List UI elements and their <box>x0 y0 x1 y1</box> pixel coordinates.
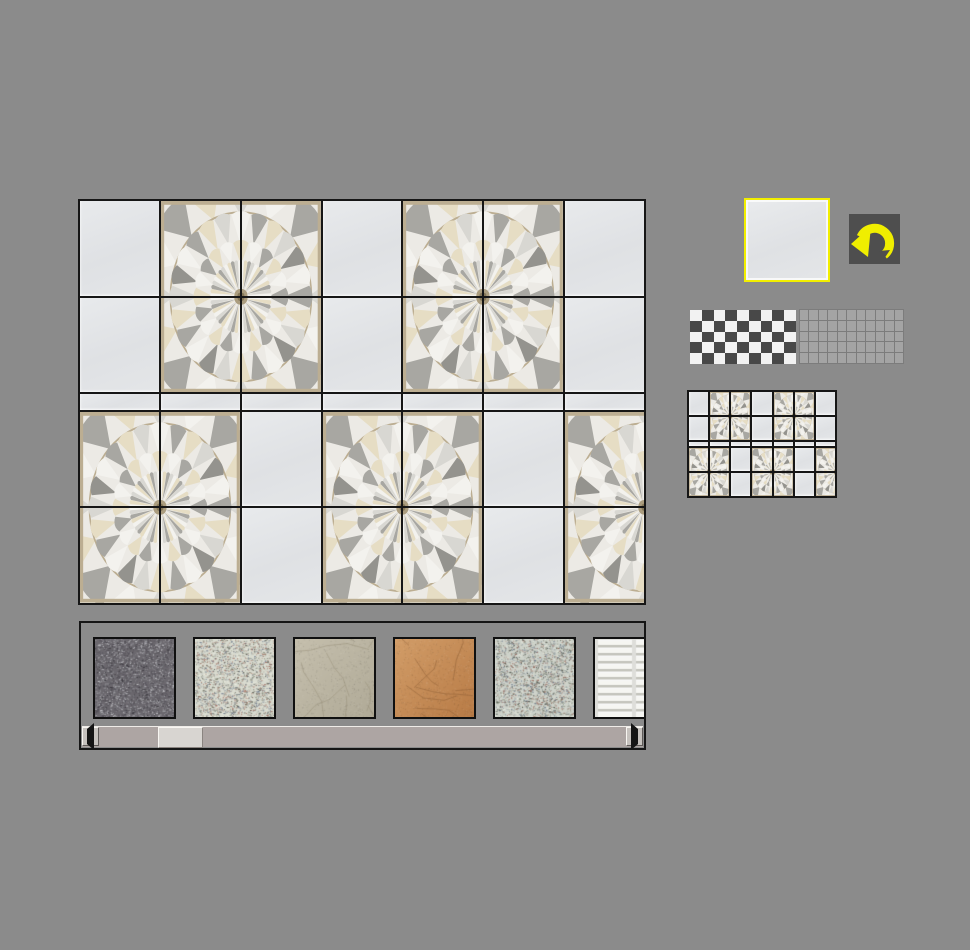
grid-cell <box>847 332 855 342</box>
grid-cell <box>857 353 865 363</box>
grid-cell <box>895 321 903 331</box>
grid-cell <box>885 353 893 363</box>
patterned-tile-tl[interactable] <box>403 201 482 296</box>
checker-cell <box>784 310 796 321</box>
patterned-tile-tl[interactable] <box>323 412 402 507</box>
grid-cell <box>838 310 846 320</box>
rotate-counterclockwise-arrow-icon <box>849 214 900 264</box>
texture-swatch-dark-granite-speckle[interactable] <box>93 637 176 719</box>
grid-cell <box>895 310 903 320</box>
checker-cell <box>784 342 796 353</box>
arrow-right-icon <box>631 723 638 750</box>
plain-tile[interactable] <box>484 394 563 410</box>
plain-tile[interactable] <box>323 394 402 410</box>
plain-tile[interactable] <box>80 298 159 393</box>
grid-cell <box>819 342 827 352</box>
patterned-tile-br[interactable] <box>161 508 240 603</box>
patterned-tile-tr <box>731 392 750 415</box>
texture-palette-panel <box>79 621 646 750</box>
grid-cell <box>876 310 884 320</box>
patterned-tile-bl[interactable] <box>403 298 482 393</box>
checker-cell <box>702 332 714 343</box>
grid-cell <box>838 353 846 363</box>
grid-cell <box>819 321 827 331</box>
grid-cell <box>819 332 827 342</box>
checker-cell <box>784 321 796 332</box>
checker-cell <box>749 353 761 364</box>
palette-scrollbar[interactable] <box>82 726 643 747</box>
plain-tile <box>752 442 771 446</box>
plain-tile <box>689 417 708 440</box>
grid-cell <box>857 310 865 320</box>
grid-cell <box>866 310 874 320</box>
grid-cell <box>800 332 808 342</box>
patterned-tile-br[interactable] <box>242 298 321 393</box>
patterned-tile-bl <box>816 473 835 496</box>
texture-swatch-white-relief-bricks[interactable] <box>593 637 646 719</box>
patterned-tile-tr <box>774 448 793 471</box>
grid-cell <box>809 310 817 320</box>
plain-tile <box>731 442 750 446</box>
patterned-tile-bl[interactable] <box>80 508 159 603</box>
patterned-tile-br[interactable] <box>403 508 482 603</box>
grid-cell <box>800 321 808 331</box>
patterned-tile-tl[interactable] <box>565 412 644 507</box>
patterned-tile-tr[interactable] <box>242 201 321 296</box>
plain-tile <box>731 473 750 496</box>
patterned-tile-br <box>731 417 750 440</box>
texture-swatch-terracotta-crackle[interactable] <box>393 637 476 719</box>
checker-cell <box>749 310 761 321</box>
grid-cell <box>857 321 865 331</box>
grid-cell <box>800 342 808 352</box>
grid-cell <box>866 332 874 342</box>
checker-cell <box>714 321 726 332</box>
grid-cell <box>847 353 855 363</box>
checker-cell <box>725 332 737 343</box>
checker-cell <box>761 321 773 332</box>
plain-tile[interactable] <box>323 201 402 296</box>
patterned-tile-bl <box>752 473 771 496</box>
grid-cell <box>885 342 893 352</box>
selected-tile-preview[interactable] <box>744 198 830 282</box>
patterned-tile-tl <box>710 392 729 415</box>
patterned-tile-tr <box>795 392 814 415</box>
checker-cell <box>737 332 749 343</box>
plain-tile[interactable] <box>403 394 482 410</box>
plain-tile <box>795 448 814 471</box>
checker-cell <box>690 321 702 332</box>
rotate-button[interactable] <box>849 214 900 264</box>
patterned-tile-tr <box>710 448 729 471</box>
grid-cell <box>809 353 817 363</box>
patterned-tile-tl <box>774 392 793 415</box>
plain-tile <box>816 442 835 446</box>
patterned-tile-tl <box>752 448 771 471</box>
checker-cell <box>702 310 714 321</box>
patterned-tile-tl[interactable] <box>80 412 159 507</box>
grid-cell <box>819 310 827 320</box>
grid-cell <box>876 321 884 331</box>
plain-tile <box>774 442 793 446</box>
arrow-left-icon <box>87 723 94 750</box>
checker-cell <box>761 353 773 364</box>
patterned-tile-br <box>710 473 729 496</box>
grid-cell <box>828 321 836 331</box>
plain-tile <box>795 442 814 446</box>
grid-cell <box>847 310 855 320</box>
plain-tile <box>689 392 708 415</box>
checker-cell <box>702 353 714 364</box>
patterned-tile-br <box>774 473 793 496</box>
plain-tile <box>710 442 729 446</box>
texture-swatch-beige-crackle-ceramic[interactable] <box>293 637 376 719</box>
patterned-tile-bl[interactable] <box>323 508 402 603</box>
patterned-tile-br <box>795 417 814 440</box>
grid-cell <box>838 332 846 342</box>
patterned-tile-tl[interactable] <box>161 201 240 296</box>
patterned-tile-tl <box>689 448 708 471</box>
checker-cell <box>737 353 749 364</box>
grid-cell <box>800 353 808 363</box>
grid-cell <box>876 353 884 363</box>
plain-tile[interactable] <box>80 201 159 296</box>
checker-cell <box>690 310 702 321</box>
grid-cell <box>828 332 836 342</box>
grid-cell <box>857 342 865 352</box>
checker-cell <box>725 342 737 353</box>
checker-cell <box>737 342 749 353</box>
plain-tile <box>795 473 814 496</box>
checker-cell <box>725 310 737 321</box>
plain-tile <box>816 417 835 440</box>
patterned-tile-tl <box>816 448 835 471</box>
scroll-right-button[interactable] <box>626 727 643 746</box>
checker-cell <box>714 310 726 321</box>
plain-tile[interactable] <box>484 508 563 603</box>
checker-cell <box>725 321 737 332</box>
texture-swatch-light-terrazzo-speckle[interactable] <box>193 637 276 719</box>
patterned-tile-br[interactable] <box>484 298 563 393</box>
checker-cell <box>761 342 773 353</box>
scrollbar-track[interactable] <box>99 727 626 747</box>
plain-tile <box>816 392 835 415</box>
grid-cell <box>895 353 903 363</box>
grid-cell <box>819 353 827 363</box>
plain-tile[interactable] <box>484 412 563 507</box>
patterned-tile-bl[interactable] <box>161 298 240 393</box>
grid-cell <box>838 321 846 331</box>
scrollbar-thumb[interactable] <box>158 727 203 748</box>
plain-tile[interactable] <box>80 394 159 410</box>
grid-cell <box>800 310 808 320</box>
grid-cell <box>857 332 865 342</box>
grid-cell <box>809 332 817 342</box>
patterned-tile-tr[interactable] <box>161 412 240 507</box>
plain-tile <box>689 442 708 446</box>
checker-cell <box>690 342 702 353</box>
layout-preview-minimap <box>687 390 837 498</box>
plain-tile[interactable] <box>323 298 402 393</box>
grid-cell <box>885 310 893 320</box>
plain-tile[interactable] <box>565 298 644 393</box>
checker-cell <box>714 353 726 364</box>
tile-layout-grid <box>78 199 646 605</box>
checker-cell <box>737 321 749 332</box>
checker-cell <box>702 321 714 332</box>
grid-cell <box>838 342 846 352</box>
checker-cell <box>702 342 714 353</box>
patterned-tile-tr[interactable] <box>403 412 482 507</box>
grid-cell <box>895 332 903 342</box>
checker-cell <box>761 332 773 343</box>
checker-cell <box>714 332 726 343</box>
plain-tile <box>752 392 771 415</box>
checker-cell <box>761 310 773 321</box>
grid-cell <box>885 321 893 331</box>
patterned-tile-tr[interactable] <box>484 201 563 296</box>
checker-cell <box>772 321 784 332</box>
grid-cell <box>809 342 817 352</box>
plain-tile[interactable] <box>161 394 240 410</box>
plain-tile[interactable] <box>242 412 321 507</box>
plain-tile <box>752 417 771 440</box>
checker-cell <box>784 353 796 364</box>
patterned-tile-bl <box>774 417 793 440</box>
uniform-grid-pattern-swatch[interactable] <box>799 309 904 364</box>
grid-cell <box>847 342 855 352</box>
grid-cell <box>809 321 817 331</box>
checkerboard-pattern-swatch[interactable] <box>690 310 796 364</box>
plain-tile[interactable] <box>565 201 644 296</box>
grid-cell <box>876 332 884 342</box>
grid-cell <box>847 321 855 331</box>
checker-cell <box>772 342 784 353</box>
grid-cell <box>828 342 836 352</box>
checker-cell <box>737 310 749 321</box>
plain-tile[interactable] <box>565 394 644 410</box>
grid-cell <box>866 353 874 363</box>
plain-tile <box>731 448 750 471</box>
grid-cell <box>828 310 836 320</box>
patterned-tile-bl <box>710 417 729 440</box>
grid-cell <box>885 332 893 342</box>
plain-tile[interactable] <box>242 508 321 603</box>
patterned-tile-bl <box>689 473 708 496</box>
checker-cell <box>772 353 784 364</box>
texture-swatch-light-terrazzo-speckle-2[interactable] <box>493 637 576 719</box>
patterned-tile-bl[interactable] <box>565 508 644 603</box>
grid-cell <box>866 321 874 331</box>
checker-cell <box>749 332 761 343</box>
scroll-left-button[interactable] <box>82 727 99 746</box>
plain-tile[interactable] <box>242 394 321 410</box>
checker-cell <box>749 342 761 353</box>
checker-cell <box>714 342 726 353</box>
grid-cell <box>876 342 884 352</box>
grid-cell <box>828 353 836 363</box>
checker-cell <box>784 332 796 343</box>
checker-cell <box>749 321 761 332</box>
grid-cell <box>866 342 874 352</box>
checker-cell <box>690 353 702 364</box>
grid-cell <box>895 342 903 352</box>
checker-cell <box>772 332 784 343</box>
checker-cell <box>690 332 702 343</box>
checker-cell <box>772 310 784 321</box>
checker-cell <box>725 353 737 364</box>
